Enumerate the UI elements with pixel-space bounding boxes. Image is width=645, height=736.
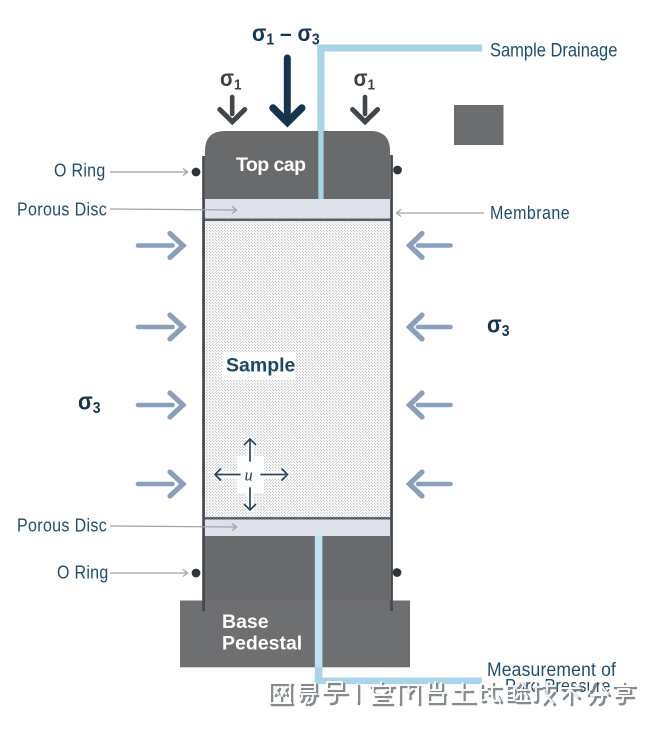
svg-text:Sample: Sample	[226, 355, 296, 377]
svg-text:O Ring: O Ring	[57, 561, 109, 582]
svg-text:Pedestal: Pedestal	[222, 633, 302, 655]
svg-text:Porous Disc: Porous Disc	[17, 198, 107, 219]
svg-text:Sample Drainage: Sample Drainage	[490, 39, 617, 60]
svg-text:u: u	[245, 466, 253, 485]
svg-text:Top cap: Top cap	[236, 154, 306, 176]
svg-text:Porous Disc: Porous Disc	[17, 514, 107, 535]
svg-text:O Ring: O Ring	[54, 159, 106, 180]
svg-text:Membrane: Membrane	[490, 202, 570, 223]
svg-text:Base: Base	[222, 611, 269, 633]
svg-text:σ1 – σ3: σ1 – σ3	[252, 20, 320, 49]
